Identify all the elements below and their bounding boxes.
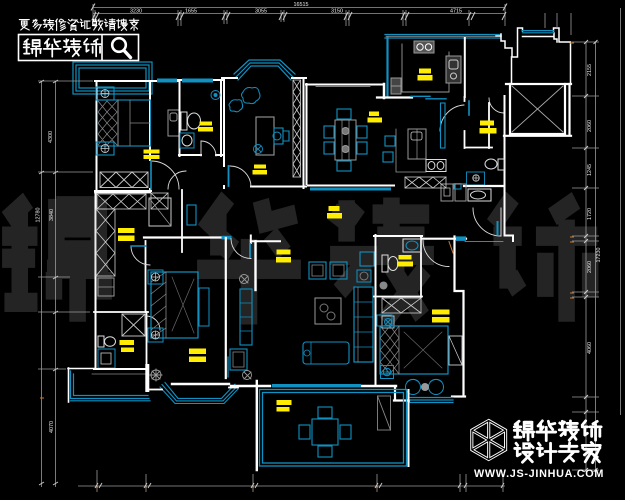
svg-text:16515: 16515	[294, 2, 309, 8]
svg-text:1655: 1655	[185, 9, 197, 15]
svg-text:4070: 4070	[49, 421, 55, 433]
svg-text:1245: 1245	[587, 164, 593, 176]
svg-text:3150: 3150	[331, 9, 343, 15]
svg-text:4300: 4300	[48, 131, 54, 143]
svg-text:4715: 4715	[450, 9, 462, 15]
svg-text:3840: 3840	[49, 209, 55, 221]
svg-text:2060: 2060	[587, 261, 593, 273]
svg-text:2060: 2060	[587, 120, 593, 132]
svg-text:17230: 17230	[596, 248, 602, 263]
svg-text:3055: 3055	[255, 9, 267, 15]
svg-text:1720: 1720	[587, 208, 593, 220]
svg-text:WWW.JS-JINHUA.COM: WWW.JS-JINHUA.COM	[474, 468, 604, 480]
svg-text:3230: 3230	[130, 9, 142, 15]
svg-text:12780: 12780	[36, 208, 42, 223]
svg-text:4060: 4060	[587, 342, 593, 354]
svg-text:2155: 2155	[587, 64, 593, 76]
